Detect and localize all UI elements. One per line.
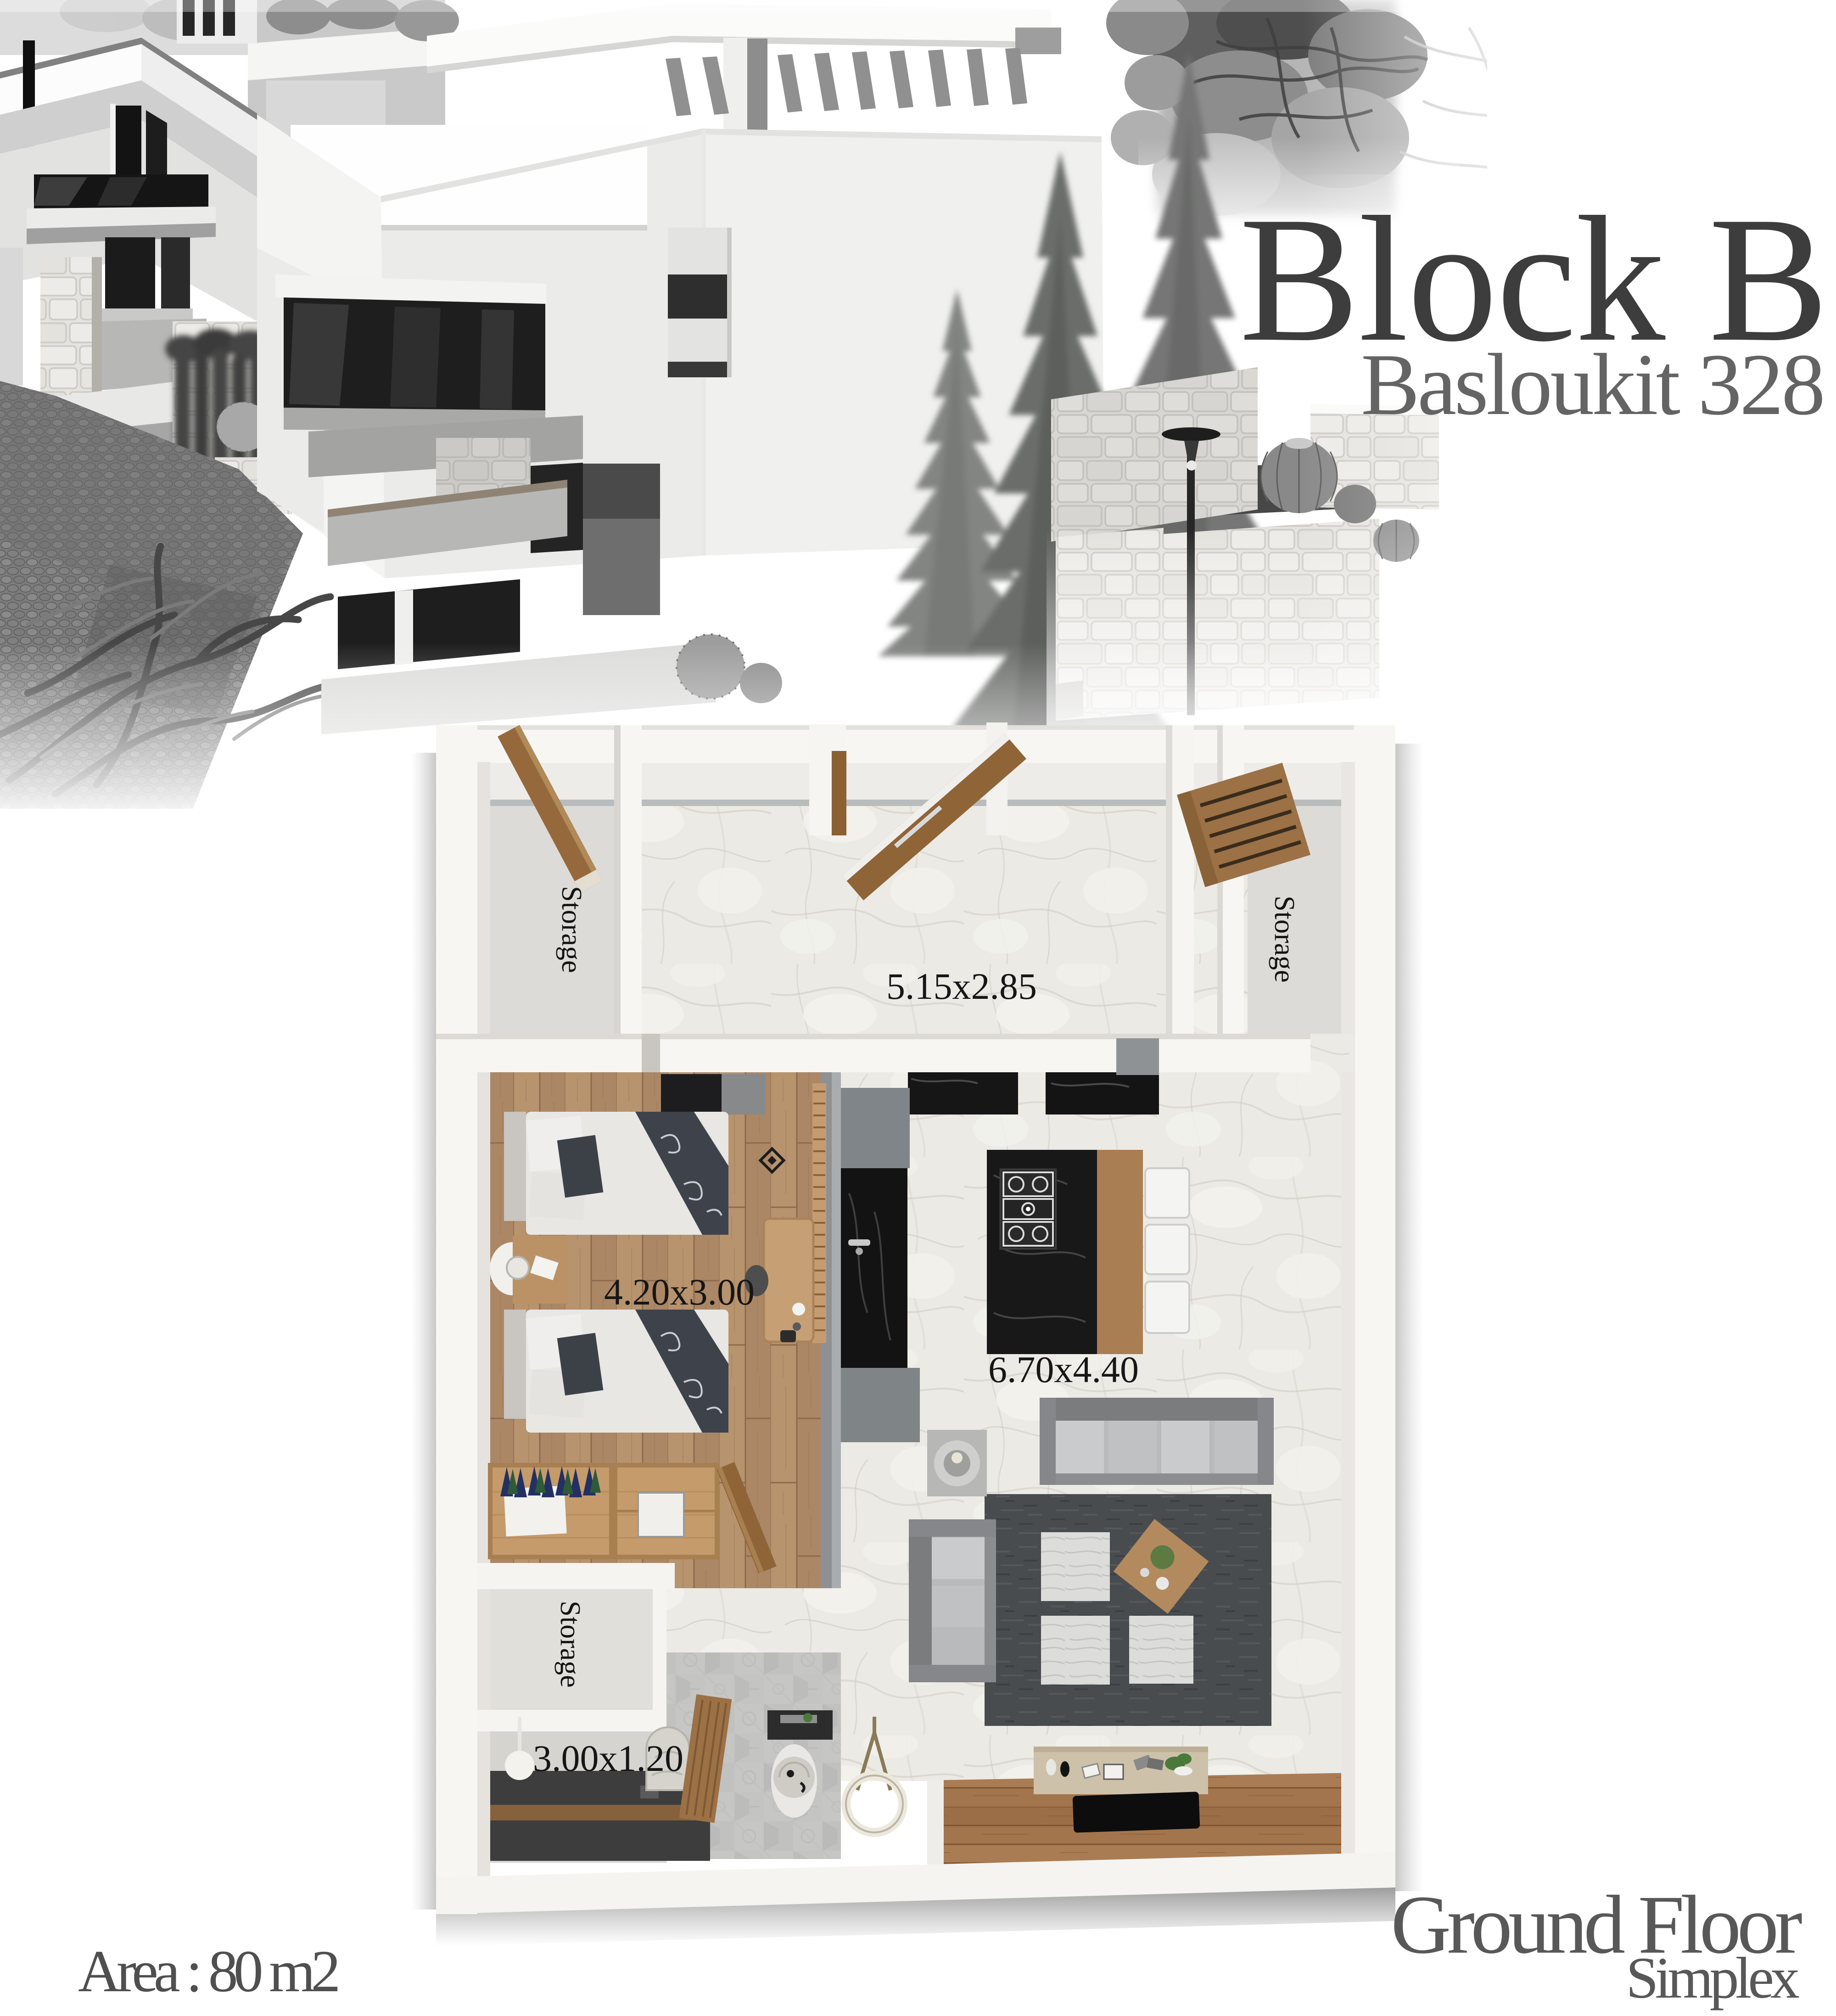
- svg-text:Storage: Storage: [556, 886, 587, 973]
- svg-text:3.00x1.20: 3.00x1.20: [533, 1737, 683, 1779]
- svg-text:Basloukit 328: Basloukit 328: [1361, 336, 1823, 433]
- svg-text:Simplex: Simplex: [1626, 1945, 1799, 2010]
- svg-text:6.70x4.40: 6.70x4.40: [988, 1349, 1139, 1390]
- svg-text:Area : 80 m2: Area : 80 m2: [78, 1938, 337, 2005]
- svg-text:Storage: Storage: [1269, 896, 1300, 982]
- svg-text:Storage: Storage: [554, 1601, 586, 1687]
- svg-text:5.15x2.85: 5.15x2.85: [886, 965, 1037, 1007]
- svg-text:4.20x3.00: 4.20x3.00: [604, 1271, 755, 1313]
